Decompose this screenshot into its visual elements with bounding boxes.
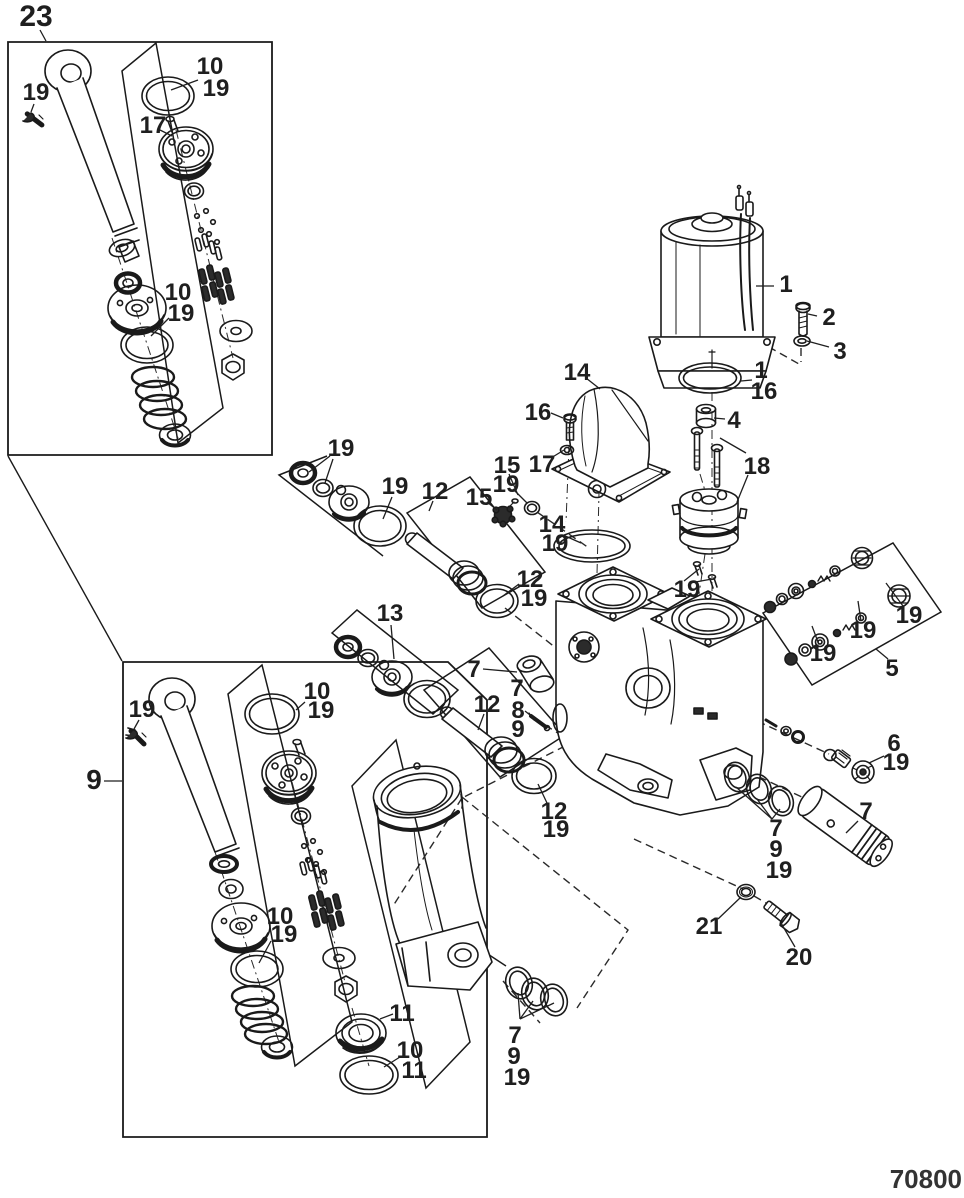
callout-label: 20 bbox=[786, 944, 813, 971]
callout-label: 19 bbox=[850, 617, 877, 644]
background bbox=[0, 0, 964, 1198]
callout-label: 7 bbox=[467, 656, 480, 683]
callout-label: 19 bbox=[328, 435, 355, 462]
callout-label: 19 bbox=[766, 857, 793, 884]
callout-label: 19 bbox=[810, 640, 837, 667]
callout-label: 12 bbox=[422, 478, 449, 505]
callout-label: 17 bbox=[140, 112, 167, 139]
callout-label: 16 bbox=[525, 399, 552, 426]
callout-label: 17 bbox=[529, 451, 556, 478]
callout-label: 19 bbox=[382, 473, 409, 500]
callout-label: 9 bbox=[511, 716, 524, 743]
callout-label: 3 bbox=[833, 338, 846, 365]
callout-label: 9 bbox=[86, 764, 102, 795]
exploded-diagram: 2319101917101912311641416171519151419181… bbox=[0, 0, 964, 1198]
callout-label: 18 bbox=[744, 453, 771, 480]
callout-label: 19 bbox=[23, 79, 50, 106]
callout-label: 21 bbox=[696, 913, 723, 940]
callout-label: 19 bbox=[168, 300, 195, 327]
callout-label: 19 bbox=[883, 749, 910, 776]
callout-label: 5 bbox=[885, 655, 898, 682]
callout-label: 11 bbox=[401, 1057, 426, 1084]
callout-label: 1 bbox=[779, 271, 792, 298]
callout-label: 7 bbox=[859, 798, 872, 825]
callout-label: 19 bbox=[674, 576, 701, 603]
callout-label: 19 bbox=[521, 585, 548, 612]
diagram-page: 2319101917101912311641416171519151419181… bbox=[0, 0, 964, 1198]
callout-label: 16 bbox=[751, 378, 778, 405]
callout-label: 19 bbox=[504, 1064, 531, 1091]
callout-label: 12 bbox=[474, 691, 501, 718]
callout-label: 11 bbox=[389, 1000, 414, 1027]
callout-label: 23 bbox=[19, 0, 52, 33]
callout-label: 2 bbox=[822, 304, 835, 331]
callout-label: 19 bbox=[271, 921, 298, 948]
callout-label: 19 bbox=[308, 697, 335, 724]
callout-label: 19 bbox=[542, 530, 569, 557]
callout-label: 13 bbox=[377, 600, 404, 627]
callout-label: 4 bbox=[727, 407, 741, 434]
callout-label: 19 bbox=[543, 816, 570, 843]
callout-label: 19 bbox=[493, 471, 520, 498]
drawing-number: 70800 bbox=[890, 1164, 962, 1194]
callout-label: 14 bbox=[564, 359, 591, 386]
callout-label: 19 bbox=[203, 75, 230, 102]
callout-label: 15 bbox=[466, 484, 493, 511]
callout-label: 19 bbox=[896, 602, 923, 629]
callout-label: 19 bbox=[129, 696, 156, 723]
